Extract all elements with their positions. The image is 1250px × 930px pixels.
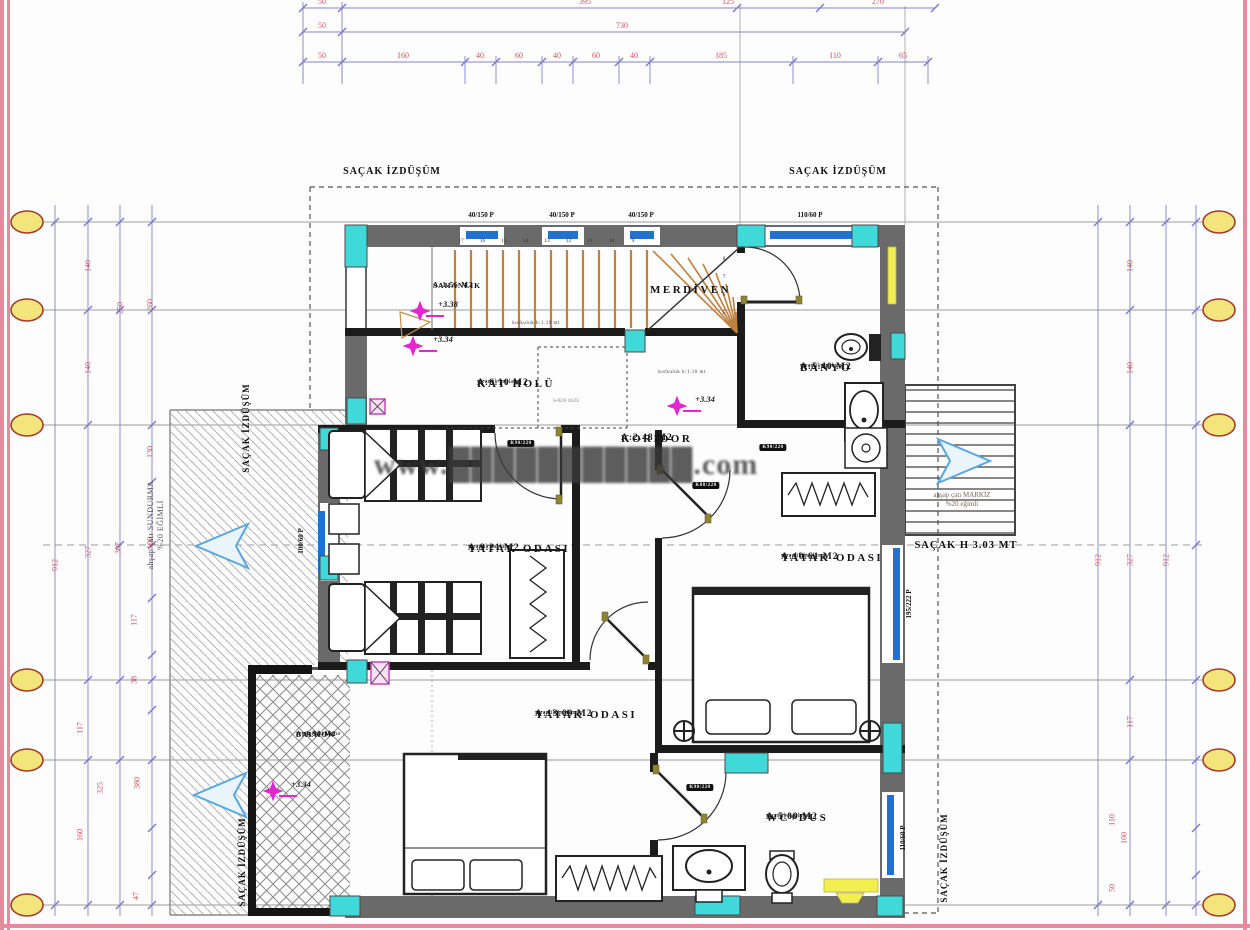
axis-bubble <box>1203 749 1235 771</box>
axis-bubble <box>1203 211 1235 233</box>
axis-bubble <box>11 414 43 436</box>
axis-bubble <box>11 669 43 691</box>
axis-bubble <box>11 299 43 321</box>
axis-bubble <box>11 894 43 916</box>
axis-bubble <box>1203 414 1235 436</box>
hatch-balcony <box>248 665 350 916</box>
koridor-dashes <box>445 347 627 428</box>
axis-bubble <box>11 211 43 233</box>
floorplan-linework <box>0 0 1250 930</box>
axis-bubble <box>1203 894 1235 916</box>
stairs <box>400 247 740 338</box>
axis-bubble <box>11 749 43 771</box>
axis-bubble <box>1203 299 1235 321</box>
axis-bubble <box>1203 669 1235 691</box>
floorplan-sheet: SAÇAK İZDÜŞÜM SAÇAK İZDÜŞÜM SAÇAK İZDÜŞÜ… <box>0 0 1250 930</box>
